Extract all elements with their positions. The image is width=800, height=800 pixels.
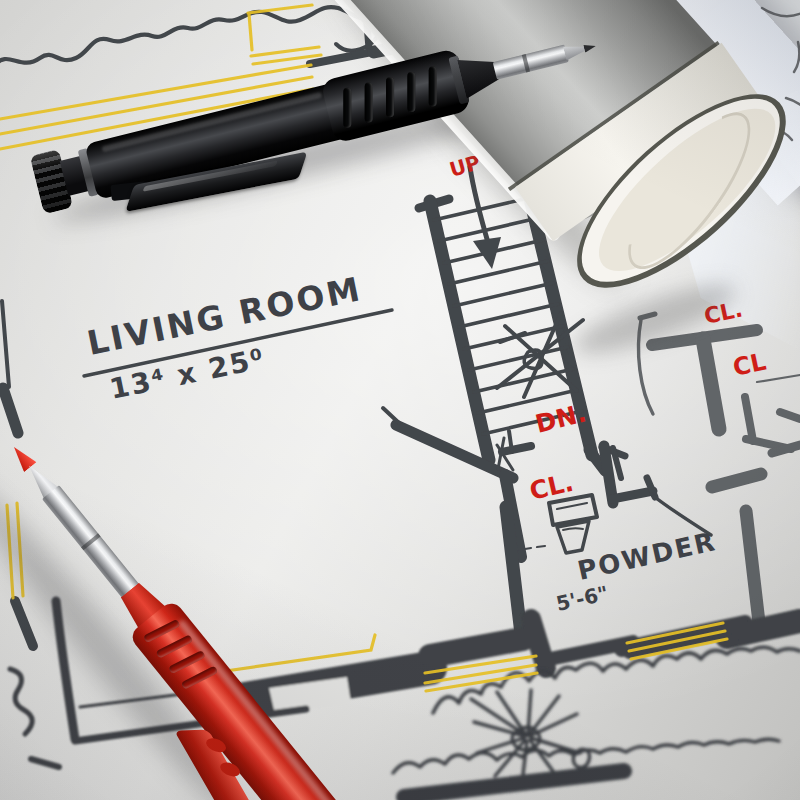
powder-dimensions-label: 5'-6": [554, 581, 611, 616]
plant-starburst: [471, 690, 580, 783]
annotation-closet-top: CL.: [702, 296, 745, 328]
grip-rib: [365, 83, 373, 123]
grip-rib: [429, 67, 437, 107]
black-pencil-tip-cone: [563, 42, 588, 61]
grip-rib: [386, 77, 394, 117]
toilet-bowl: [557, 521, 589, 553]
powder-label: POWDER: [575, 526, 719, 586]
annotation-closet-mid: CL: [730, 348, 768, 382]
closet-walls-group: [638, 314, 800, 631]
product-photo: LIVING ROOM 13⁴ x 25⁰ POWDER 5'-6" UP DN…: [0, 0, 800, 800]
grip-rib: [407, 72, 415, 112]
grip-rib: [343, 88, 351, 128]
up-arrow-head: [473, 237, 501, 269]
black-pencil-metal-tube: [493, 44, 569, 79]
